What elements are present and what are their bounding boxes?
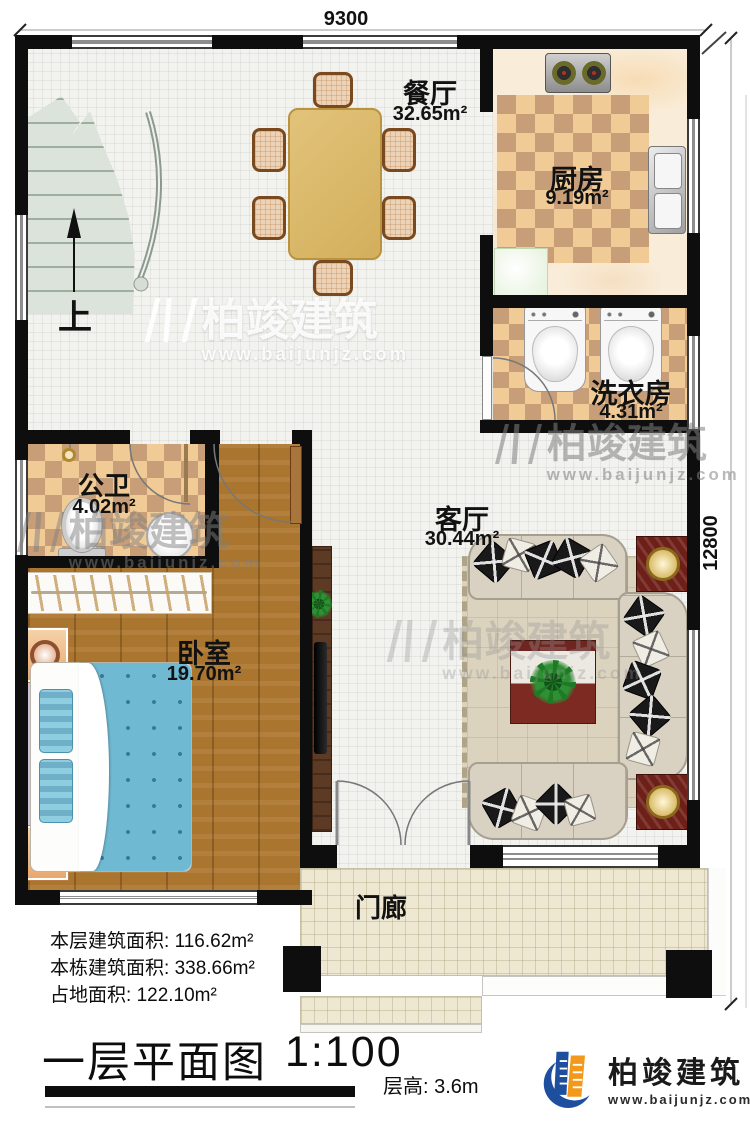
area-summary: 本层建筑面积: 116.62m² 本栋建筑面积: 338.66m² 占地面积: …: [50, 928, 255, 1009]
brand-logo-icon: [540, 1044, 600, 1110]
area-line: 本栋建筑面积: 338.66m²: [50, 955, 255, 982]
area-line: 占地面积: 122.10m²: [50, 982, 255, 1009]
room-area-bedroom: 19.70m²: [152, 663, 256, 686]
brand-logo: 柏竣建筑 www.baijunjz.com: [540, 1044, 750, 1110]
room-label-porch: 门廊: [335, 888, 427, 925]
floor-plan-page: 9300 12800 餐厅 32.65m² 厨房 9.19m² 洗衣房 4.31…: [0, 0, 750, 1122]
room-area-bathroom: 4.02m²: [60, 496, 148, 519]
plan-title-text: 一层平面图: [42, 1028, 267, 1090]
area-line: 本层建筑面积: 116.62m²: [50, 928, 255, 955]
brand-url: www.baijunjz.com: [608, 1092, 750, 1107]
floor-height: 层高: 3.6m: [383, 1070, 479, 1099]
brand-name: 柏竣建筑: [608, 1048, 750, 1092]
plan-title: 一层平面图 1:100: [42, 1028, 403, 1090]
room-area-living: 30.44m²: [412, 528, 512, 551]
stairs-up-label: 上: [54, 290, 96, 339]
room-area-laundry: 4.31m²: [586, 401, 676, 424]
room-area-dining: 32.65m²: [375, 103, 485, 126]
room-area-kitchen: 9.19m²: [530, 187, 624, 210]
